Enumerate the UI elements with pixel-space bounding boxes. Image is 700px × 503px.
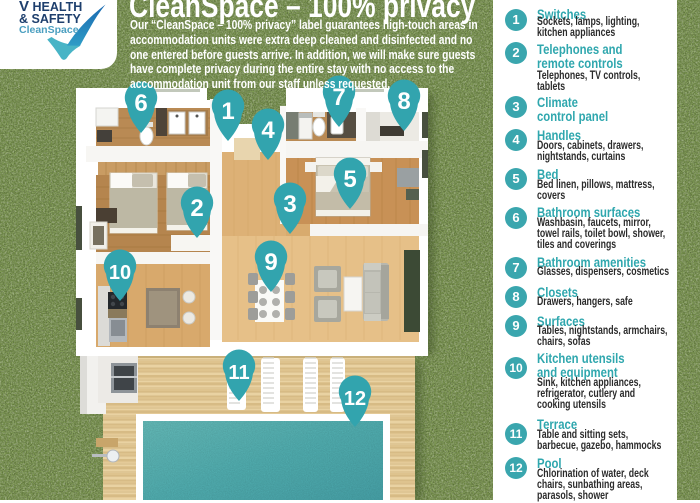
svg-text:9: 9 xyxy=(264,249,277,276)
svg-text:5: 5 xyxy=(343,166,356,193)
svg-text:12: 12 xyxy=(344,388,366,410)
svg-text:8: 8 xyxy=(397,88,410,115)
svg-text:3: 3 xyxy=(283,191,296,218)
svg-text:10: 10 xyxy=(109,262,131,284)
svg-text:11: 11 xyxy=(228,362,249,384)
svg-text:1: 1 xyxy=(221,98,234,125)
svg-text:6: 6 xyxy=(134,90,147,117)
svg-text:2: 2 xyxy=(190,195,203,222)
svg-text:4: 4 xyxy=(261,117,275,144)
